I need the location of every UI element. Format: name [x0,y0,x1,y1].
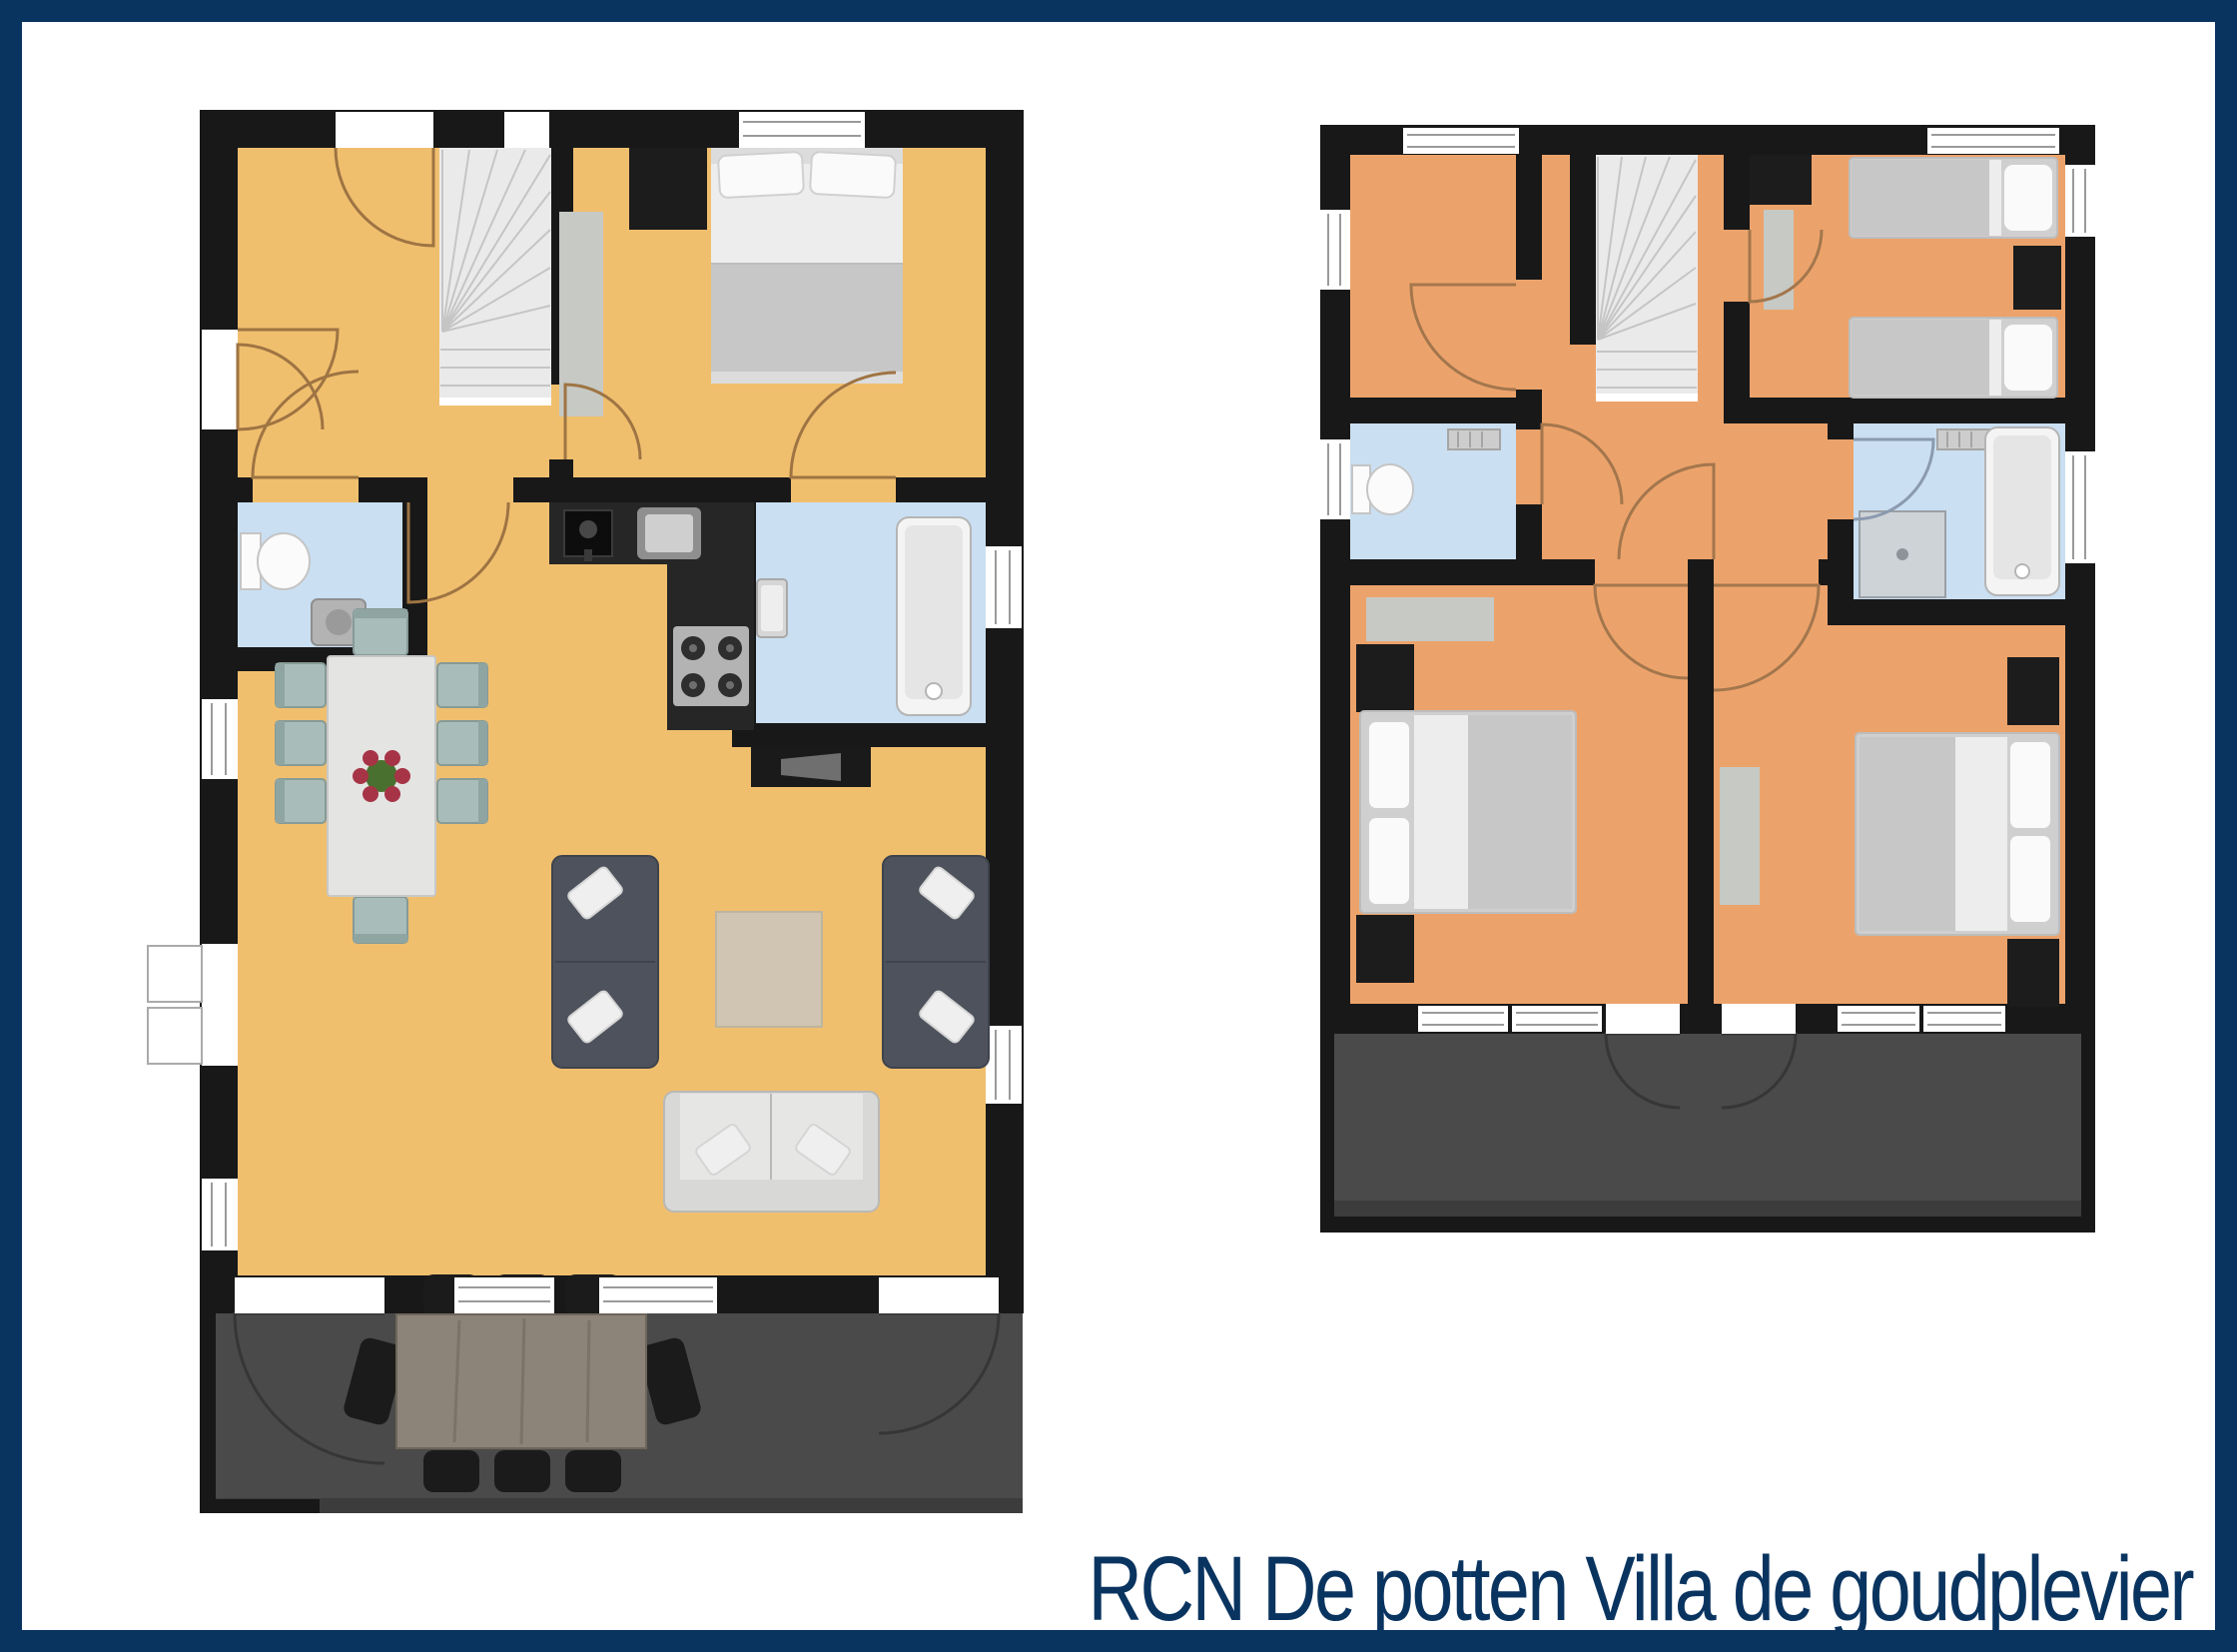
entrance-door-opening [202,330,238,429]
radiator [1937,429,1989,449]
window [1320,210,1350,290]
window [986,546,1022,628]
closet [1750,155,1812,205]
window [986,1026,1022,1104]
floor-plan-page: RCN De potten Villa de goudplevier [0,0,2237,1652]
window [1512,1006,1602,1032]
balcony-floor [1334,1034,2081,1219]
single-bed [1850,318,2057,398]
window [504,112,549,148]
window [202,699,238,779]
living-rug [716,912,822,1027]
window [2065,165,2095,237]
pillow [1368,817,1410,905]
bathroom-sink-basin [761,585,783,631]
pillow [1368,721,1410,809]
kitchen-sink-basin [645,514,693,552]
nightstand [1356,915,1414,983]
outdoor-chair [565,1450,621,1492]
toilet-bowl [1367,464,1413,514]
window [1418,1006,1508,1032]
sofa-bottom [664,1092,879,1212]
nightstand [2013,246,2061,310]
single-bed [1850,158,2057,238]
sofa-left [552,856,658,1068]
bathtub-basin [905,525,963,699]
pillow [2003,324,2053,392]
french-door-opening [202,944,238,1066]
oven-knob [579,520,597,538]
pillow [810,152,896,198]
dresser [1366,597,1494,641]
nightstand [1356,644,1414,712]
window [1403,128,1519,154]
balcony-edge [1334,1201,2081,1219]
closet [629,148,707,230]
bathtub-basin [1993,435,2051,579]
window [2065,451,2095,563]
toilet-room-first [1350,423,1516,559]
terrace-side-wall [200,1313,216,1513]
stairs-landing-edge [1596,394,1698,402]
shower-drain [1896,548,1908,560]
terrace-door-opening [235,1277,384,1313]
bathtub-drain [2015,564,2029,578]
window [1923,1006,2005,1032]
pillow [2003,164,2053,232]
washer-drum [326,609,352,635]
terrace-door-opening [879,1277,999,1313]
outdoor-chair [494,1450,550,1492]
door-opening [336,112,433,148]
toilet-bowl [258,533,310,589]
double-bed [711,148,903,384]
window [1320,439,1350,519]
window [454,1277,554,1313]
window [1838,1006,1919,1032]
balcony [1320,1034,2095,1233]
nightstand [2007,939,2059,1007]
double-bed [1360,711,1576,913]
staircase-ground [439,148,551,406]
bathroom-first [1854,423,2065,599]
pillow [2009,835,2051,923]
window [202,1179,238,1250]
bathtub-drain [926,683,942,699]
double-bed [1856,733,2059,935]
first-floor-plan [1320,125,2095,1233]
radiator [1448,429,1500,449]
balcony-door-opening [1606,1004,1680,1034]
sofa-right [883,856,989,1068]
title-text: RCN De potten Villa de goudplevier [1088,1537,2193,1640]
window [739,112,865,148]
pillow [718,152,804,198]
plan-title: RCN De potten Villa de goudplevier [1088,1537,2193,1640]
pillow [2009,741,2051,829]
terrace-corner-wall [200,1499,320,1513]
nightstand [2007,657,2059,725]
outdoor-chair [423,1450,479,1492]
window [599,1277,717,1313]
balcony-door-opening [1722,1004,1796,1034]
cooktop [673,626,749,706]
ground-floor-plan [148,110,1024,1513]
terrace-edge [204,1498,1023,1513]
staircase-first [1596,155,1698,402]
bathroom-ground [756,502,986,723]
stairs-landing-edge [439,398,551,406]
oven-handle [584,549,592,561]
floor-plan-svg: RCN De potten Villa de goudplevier [0,0,2237,1652]
dresser [1720,767,1760,905]
window [1927,128,2059,154]
